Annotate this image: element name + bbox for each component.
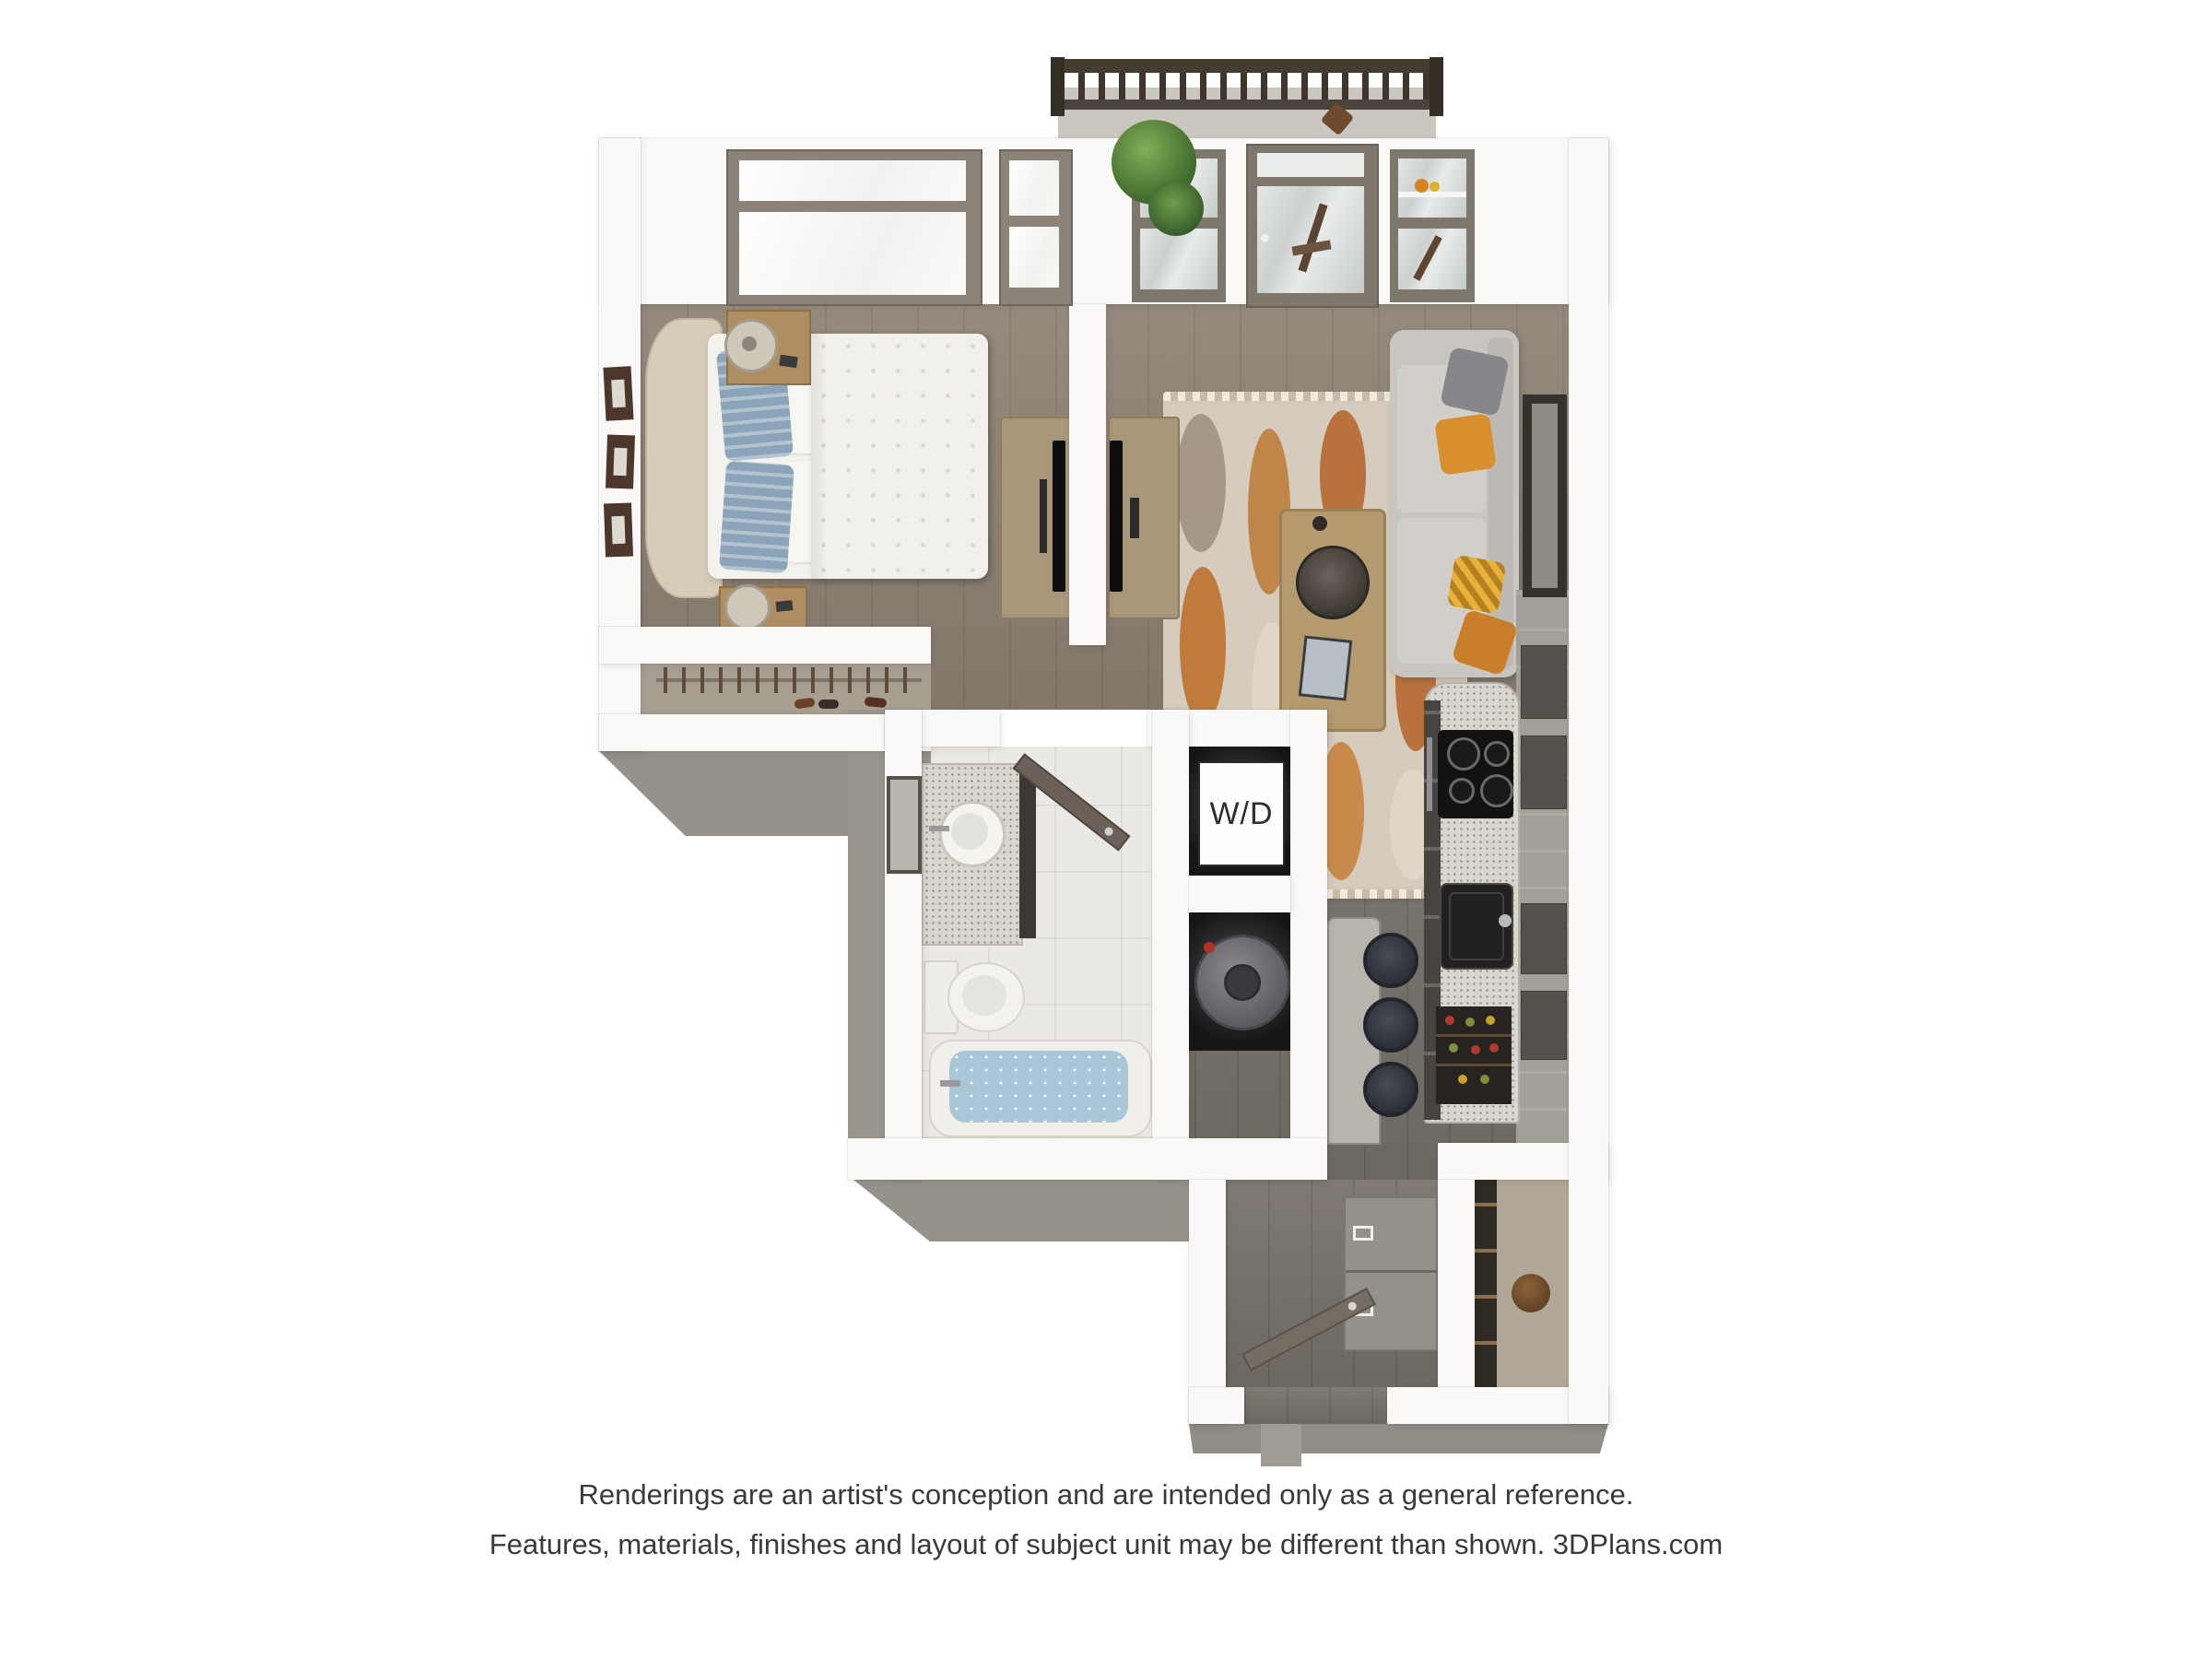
tv-living bbox=[1110, 441, 1123, 592]
shoe-closet-shelving bbox=[1475, 1180, 1497, 1387]
washer-dryer-sign: W/D bbox=[1198, 761, 1285, 866]
coffee-table-vase bbox=[1312, 516, 1327, 531]
nightstand-bottom-phone bbox=[775, 600, 793, 612]
wine-bottle-1 bbox=[1445, 1016, 1454, 1025]
wall-frame-3-art bbox=[611, 516, 625, 544]
coffee-table-tray bbox=[1296, 546, 1370, 619]
entry-cabinet bbox=[1344, 1196, 1438, 1351]
wall-bath-bottom bbox=[848, 1138, 1327, 1180]
oven-handle bbox=[1427, 737, 1432, 811]
bathtub-faucet bbox=[940, 1080, 960, 1087]
wine-bottle-2 bbox=[1465, 1018, 1475, 1027]
living-window-right-lower-pane bbox=[1398, 229, 1466, 289]
burner-4 bbox=[1480, 774, 1513, 807]
bathroom-faucet bbox=[929, 826, 949, 831]
entry-bottom-wall-outer-face bbox=[1189, 1424, 1608, 1453]
rug-motif-2 bbox=[1180, 567, 1226, 724]
burner-3 bbox=[1449, 778, 1475, 804]
rug-motif-1 bbox=[1176, 414, 1226, 552]
kitchen-faucet bbox=[1499, 914, 1512, 927]
living-window-right bbox=[1390, 149, 1475, 302]
bar-stool-2 bbox=[1363, 997, 1418, 1053]
nightstand-bottom-lamp bbox=[724, 584, 771, 630]
fruit-bowl-shelf bbox=[1398, 192, 1466, 197]
bedroom-window-small-upper-pane bbox=[1009, 160, 1059, 216]
entry-door-handle bbox=[1347, 1300, 1358, 1312]
wine-bottle-5 bbox=[1471, 1045, 1480, 1054]
water-heater-cap bbox=[1224, 964, 1261, 1001]
wine-rack bbox=[1436, 1006, 1512, 1104]
wall-bedroom-bottom bbox=[599, 627, 931, 664]
balcony-door-handle bbox=[1261, 234, 1269, 242]
bar-stool-1 bbox=[1363, 933, 1418, 988]
sofa-pillow-chevron bbox=[1447, 555, 1507, 615]
balcony-plant-leaves bbox=[1148, 181, 1204, 236]
entry-cabinet-divider bbox=[1346, 1270, 1436, 1273]
upper-cabinet-3 bbox=[1521, 903, 1567, 974]
bedroom-window-large bbox=[726, 149, 982, 306]
wine-bottle-7 bbox=[1458, 1075, 1467, 1084]
balcony-railing-post-left bbox=[1051, 57, 1065, 116]
wine-shelf-2 bbox=[1436, 1064, 1512, 1066]
upper-cabinet-1 bbox=[1521, 645, 1567, 719]
bathroom-vanity-front bbox=[1019, 767, 1036, 938]
kitchen-sink-basin-line bbox=[1449, 892, 1504, 960]
washer-dryer-label: W/D bbox=[1209, 796, 1273, 832]
entry-cabinet-handle-1 bbox=[1353, 1226, 1373, 1241]
coffee-table-tablet bbox=[1299, 635, 1353, 700]
balcony-door-pane bbox=[1257, 186, 1364, 293]
wine-bottle-3 bbox=[1486, 1016, 1495, 1025]
bar-stool-3 bbox=[1363, 1062, 1418, 1117]
wall-divider-bedroom-living bbox=[1069, 304, 1106, 645]
wall-bath-right bbox=[1152, 710, 1189, 1175]
bedroom-window-small-lower-pane bbox=[1009, 227, 1059, 288]
bathtub-water bbox=[949, 1051, 1128, 1123]
wall-frame-2-art bbox=[613, 448, 627, 476]
cooktop bbox=[1438, 730, 1513, 818]
entry-doorway-floor bbox=[1244, 1387, 1387, 1424]
balcony-door bbox=[1246, 144, 1379, 308]
tv-bedroom bbox=[1053, 441, 1065, 592]
bed-duvet bbox=[811, 334, 988, 579]
floorplan-page: W/D bbox=[0, 0, 2212, 1659]
balcony-door-transom bbox=[1257, 153, 1364, 177]
fruit-yellow bbox=[1430, 182, 1440, 192]
entry-door-landing bbox=[1261, 1424, 1301, 1466]
wine-bottle-8 bbox=[1480, 1075, 1489, 1084]
bathroom-sink-basin bbox=[951, 813, 988, 850]
balcony-railing-top-bar bbox=[1051, 59, 1443, 73]
burner-2 bbox=[1484, 741, 1510, 767]
disclaimer-line-1: Renderings are an artist's conception an… bbox=[0, 1478, 2212, 1512]
soundbar-bedroom bbox=[1040, 479, 1047, 553]
wall-frame-1 bbox=[604, 366, 634, 420]
balcony-chair-silhouette bbox=[1298, 203, 1327, 272]
wine-bottle-4 bbox=[1449, 1043, 1458, 1053]
bath-bottom-wall-outer-face bbox=[848, 1175, 1189, 1241]
wine-bottle-6 bbox=[1489, 1043, 1499, 1053]
media-box-living bbox=[1130, 498, 1139, 538]
closet-shoe-2 bbox=[818, 700, 839, 709]
nightstand-top-phone bbox=[779, 355, 797, 369]
wall-frame-3 bbox=[604, 502, 633, 557]
bathroom-mirror bbox=[887, 776, 922, 874]
entry-bag bbox=[1512, 1274, 1550, 1312]
wall-entry-bottom-left bbox=[1189, 1387, 1244, 1424]
closet-hangers bbox=[664, 667, 918, 693]
burner-1 bbox=[1447, 737, 1480, 771]
bedroom-window-large-main-pane bbox=[739, 212, 966, 295]
water-heater-valve bbox=[1204, 942, 1215, 953]
bedroom-window-large-transom-pane bbox=[739, 160, 966, 201]
upper-cabinet-4 bbox=[1521, 991, 1567, 1060]
wall-closets-right bbox=[1290, 710, 1327, 1143]
wall-frame-1-art bbox=[611, 380, 626, 408]
sofa-pillow-gray bbox=[1440, 347, 1510, 417]
wall-right bbox=[1569, 138, 1608, 1424]
wall-closet-bottom bbox=[599, 714, 931, 751]
balcony-railing-bottom-bar bbox=[1058, 100, 1436, 110]
sofa-pillow-orange-1 bbox=[1434, 413, 1497, 476]
balcony-chair2-silhouette bbox=[1413, 235, 1441, 281]
toilet-seat bbox=[962, 975, 1006, 1016]
wall-shoe-closet-left bbox=[1438, 1180, 1475, 1387]
balcony-railing-post-right bbox=[1430, 57, 1443, 116]
upper-cabinet-2 bbox=[1521, 735, 1567, 809]
wall-closets-mid bbox=[1189, 876, 1290, 912]
bath-left-wall-outer-face bbox=[848, 710, 885, 1175]
disclaimer-line-2: Features, materials, finishes and layout… bbox=[0, 1528, 2212, 1561]
living-art-frame bbox=[1523, 394, 1567, 597]
living-window-left-lower-pane bbox=[1140, 229, 1218, 289]
nightstand-top-lamp-finial bbox=[742, 336, 757, 351]
bathroom-door-handle bbox=[1103, 826, 1115, 838]
bedroom-window-small bbox=[999, 149, 1073, 306]
bed-pillow-blue-bottom bbox=[719, 461, 794, 574]
living-window-right-upper-pane bbox=[1398, 159, 1466, 218]
fruit-orange bbox=[1415, 179, 1429, 193]
wine-shelf-1 bbox=[1436, 1034, 1512, 1037]
wall-frame-2 bbox=[606, 434, 635, 488]
